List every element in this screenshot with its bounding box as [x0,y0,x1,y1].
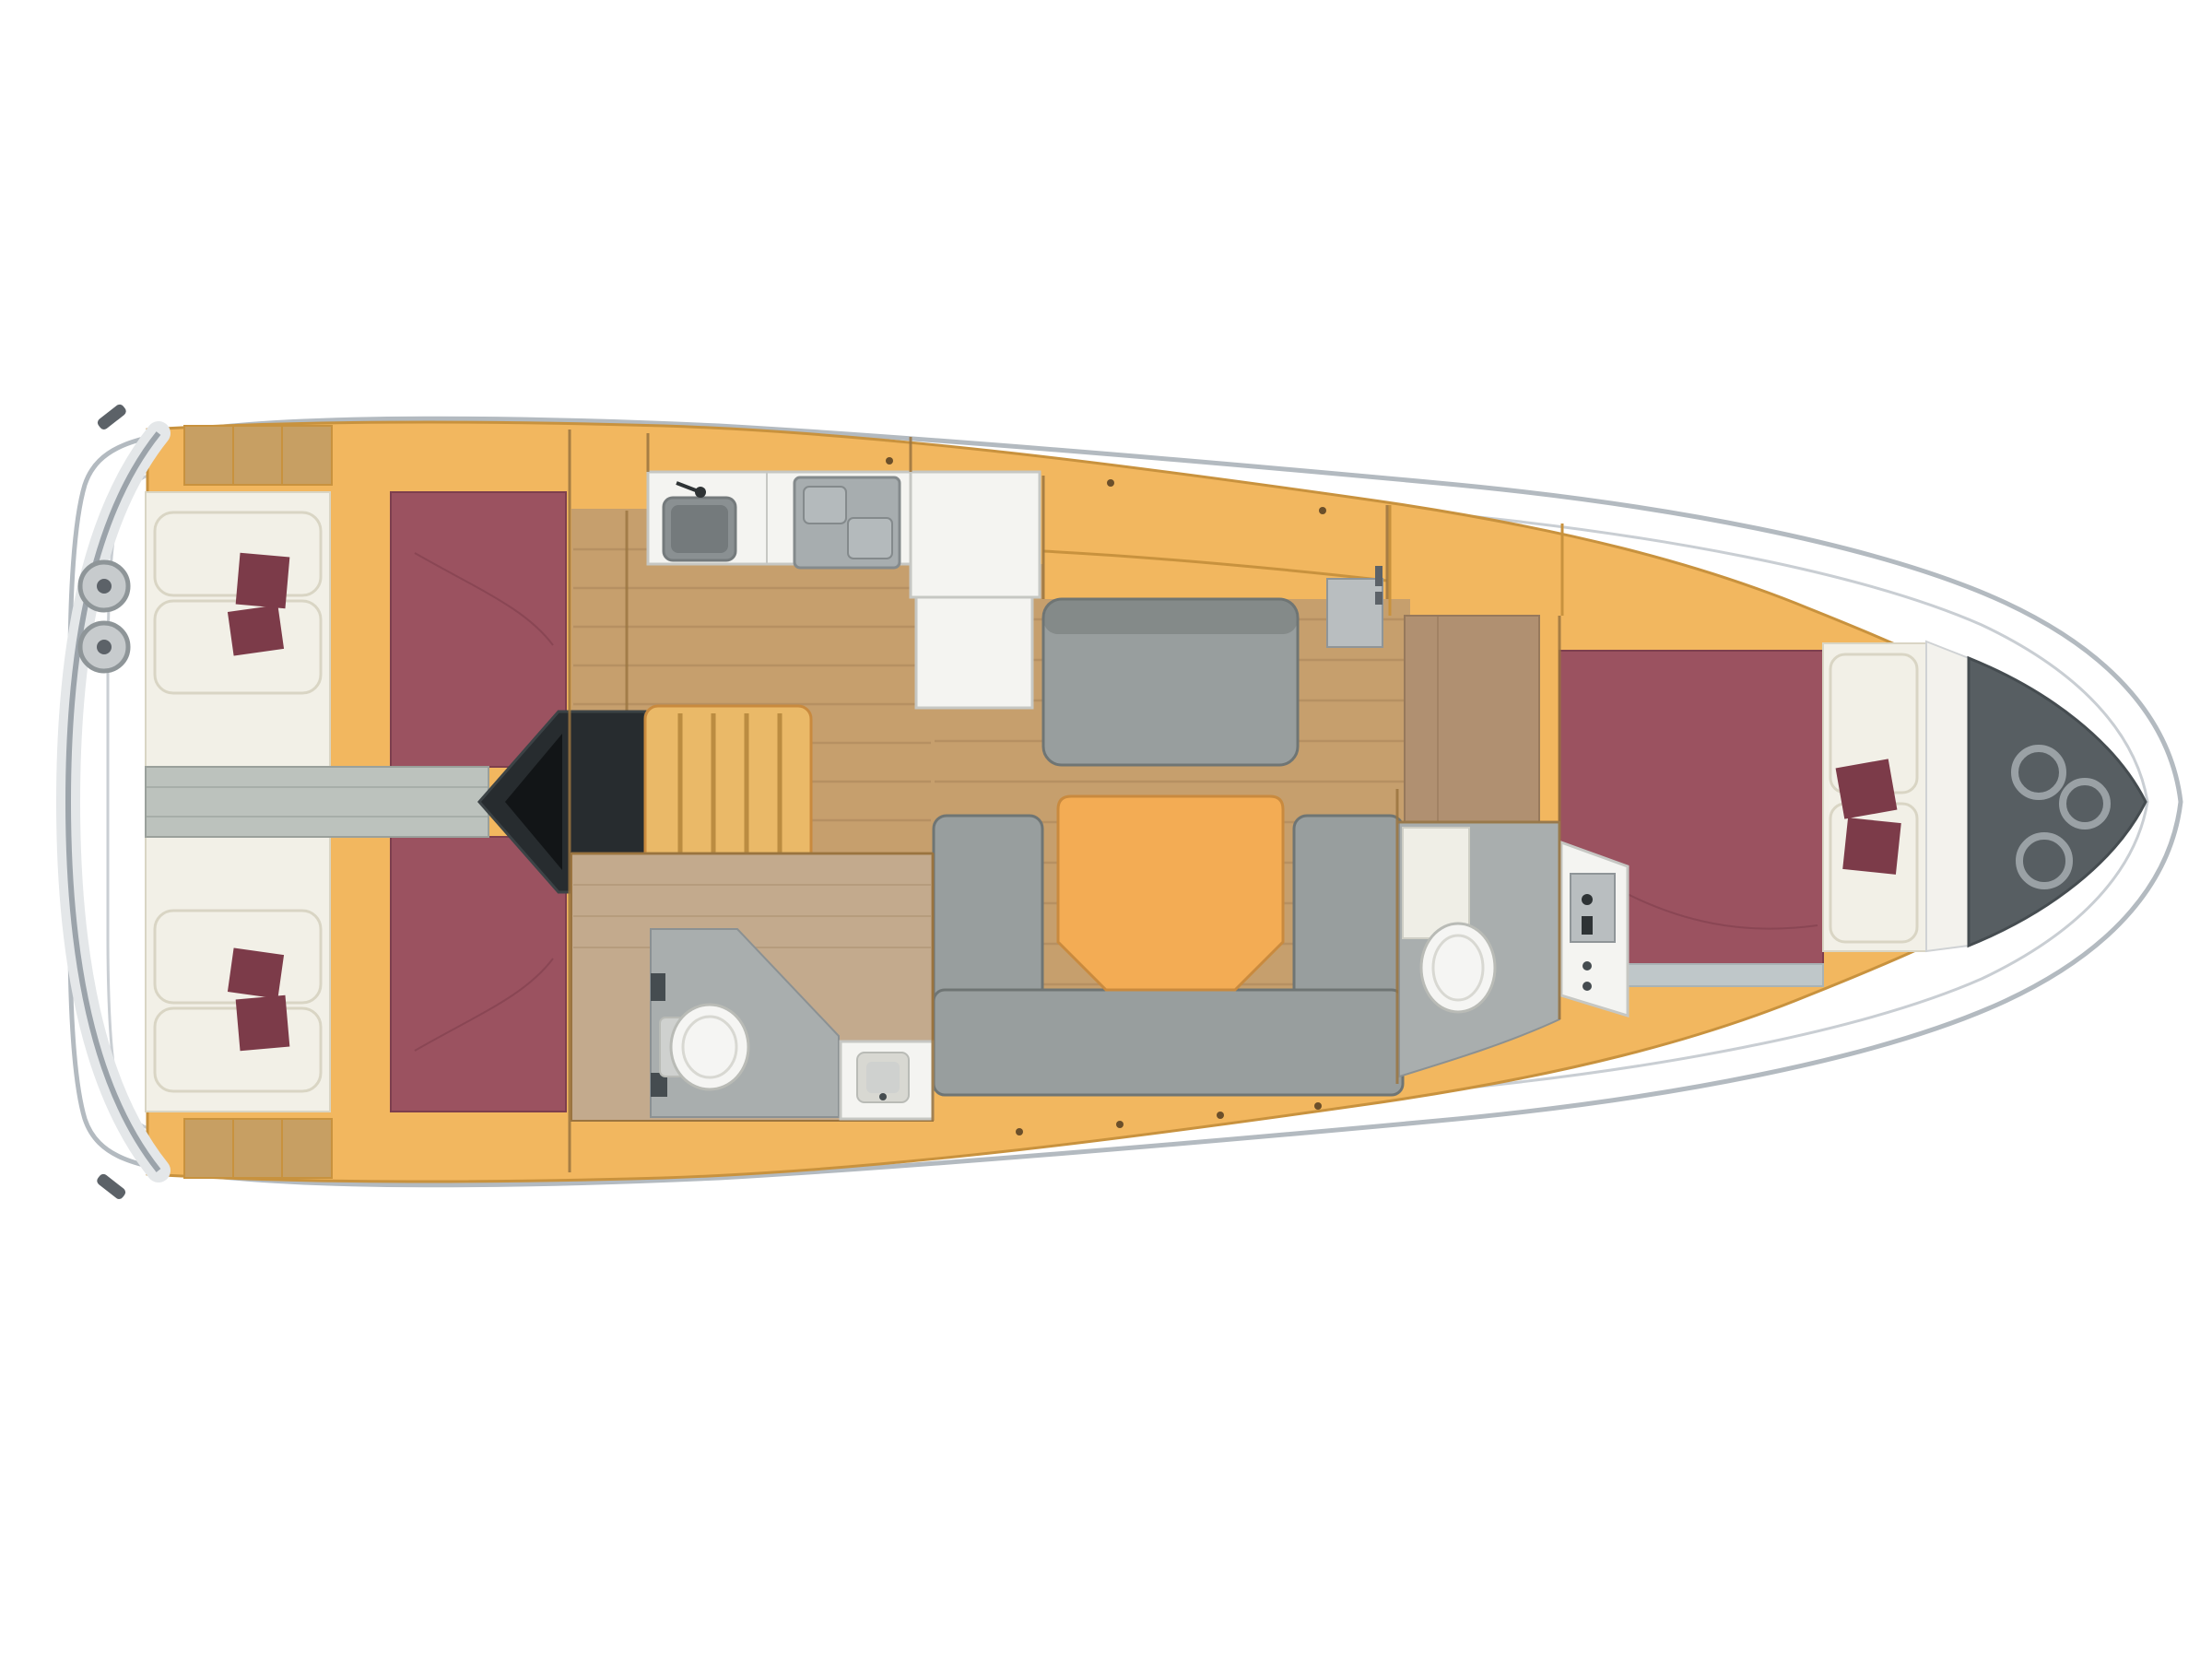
washbasin-inner [866,1062,900,1093]
wardrobe-handle [1375,566,1382,586]
decor-cushion [236,995,290,1051]
band-dot [1116,1121,1124,1128]
panel-knob [1582,894,1593,905]
stern-lockers [184,426,332,485]
decor-cushion [1836,759,1898,818]
band-dot [1319,507,1326,514]
band-dot [1107,479,1114,487]
dining-table [1058,796,1283,990]
band-dot [1314,1102,1322,1110]
yacht-floor-plan: sailing-yacht-interior-floor-plan [0,0,2212,1659]
wardrobe-handle [1375,592,1382,605]
page-background: sailing-yacht-interior-floor-plan [0,0,2212,1659]
decor-cushion [228,605,284,655]
corner-cleat [95,1172,127,1201]
fridge-counter [911,472,1040,597]
band-dot [1217,1112,1224,1119]
forepeak-bulkhead [1926,641,1969,951]
round-deck-fitting-center [97,579,112,594]
stern-lockers [184,1119,332,1178]
door-leaf [1403,828,1469,938]
decor-cushion [1842,818,1901,875]
band-dot [1016,1128,1023,1135]
aft-head [571,853,933,1121]
berth-step [1620,964,1823,986]
fridge-counter-lower [916,597,1032,708]
dresser [1405,616,1539,822]
sink-basin [671,505,728,553]
decor-cushion [228,947,284,998]
shower-fitting [651,973,665,1001]
stove-burner [804,487,846,524]
sofa-bottom-seat [934,990,1403,1095]
shelf-hatch [1327,579,1382,647]
panel-switch [1582,916,1593,935]
stove-burner [848,518,892,559]
band-dot [886,457,893,465]
round-deck-fitting-center [97,640,112,654]
panel-knob [1583,961,1592,971]
center-corridor [146,767,488,837]
port-settee-backrest [1043,599,1298,634]
drain-mark [879,1093,887,1100]
corner-cleat [96,403,128,431]
panel-knob [1583,982,1592,991]
decor-cushion [236,553,290,608]
